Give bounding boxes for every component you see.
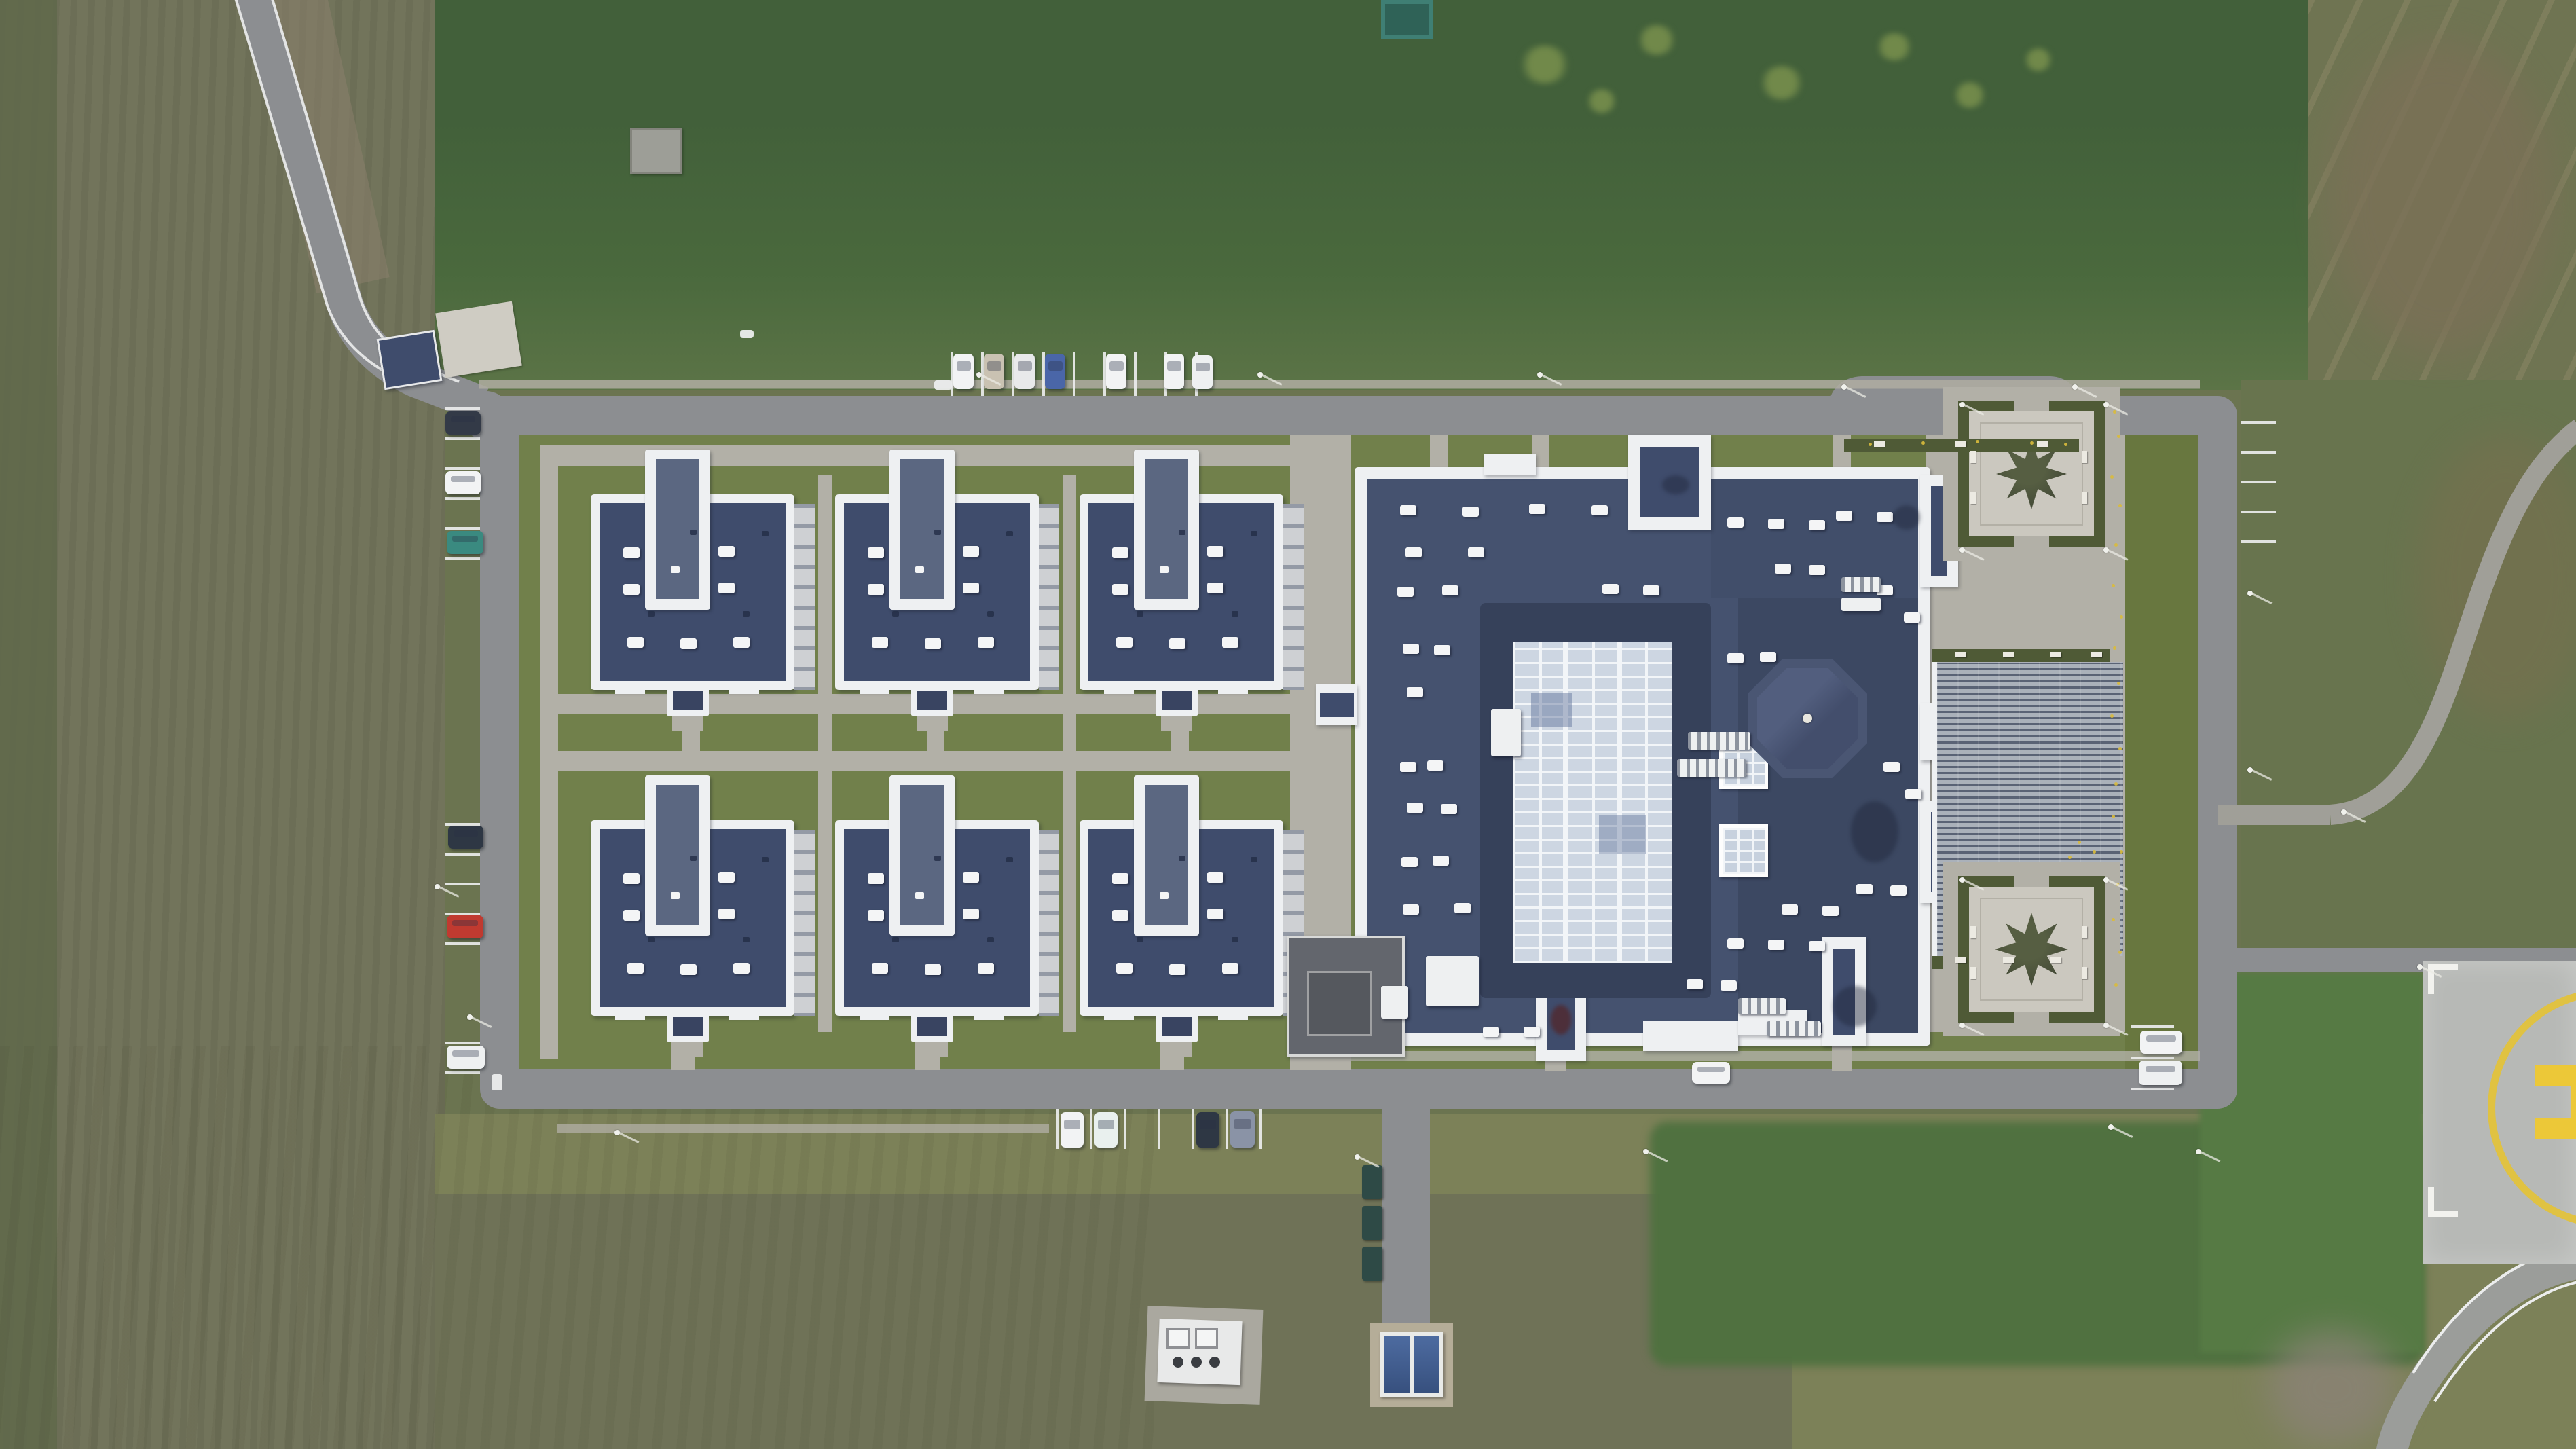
- bench: [2082, 967, 2087, 979]
- apartment-porch-roof: [673, 1017, 703, 1036]
- plaza-south-hedge-left: [1958, 876, 1969, 1023]
- apartment-entrance-pad: [672, 1042, 703, 1057]
- roof-vent: [1727, 938, 1744, 949]
- apartment-roof-hatch: [978, 963, 994, 974]
- helipad-corner-mark-2b: [2428, 1211, 2458, 1217]
- lamp-post: [2072, 384, 2078, 390]
- car: [1164, 354, 1184, 389]
- roof-unit: [1767, 1021, 1821, 1036]
- roof-vent: [1768, 519, 1784, 529]
- roof-vent: [1822, 906, 1839, 916]
- apartment-roof-hatch: [1116, 963, 1133, 974]
- roof-vent: [1401, 857, 1418, 867]
- apartment-roof-hatch: [1112, 910, 1128, 921]
- parking-bay-line: [1226, 1109, 1228, 1149]
- lamp-post: [1959, 1023, 1965, 1028]
- roof-vent: [1405, 547, 1422, 557]
- roof-vent: [1400, 762, 1416, 772]
- octagon-finial: [1803, 714, 1812, 723]
- car: [1045, 354, 1065, 389]
- apartment-entrance-pad: [1161, 1042, 1192, 1057]
- apartment-building-6: [1080, 775, 1304, 1061]
- helipad-corner-mark-1b: [2428, 964, 2434, 994]
- apartment-roof-hatch: [925, 638, 941, 649]
- roof-vent: [1468, 547, 1484, 557]
- apartment-parapet-step: [860, 1009, 889, 1020]
- lamp-post: [2103, 547, 2109, 553]
- apartment-roof-hatch: [627, 637, 644, 648]
- apartment-stair-tower-roof: [900, 459, 944, 599]
- apartment-entrance-pad: [672, 716, 703, 731]
- apartment-roof-hatch: [1112, 873, 1128, 884]
- apartment-roof-hatch: [963, 909, 979, 919]
- roof-vent: [1775, 564, 1791, 574]
- apartment-roof-hatch: [1207, 583, 1223, 593]
- apartment-tower-vent: [1160, 566, 1169, 573]
- car: [448, 826, 483, 849]
- apartment-tower-vent: [1160, 892, 1169, 899]
- flower-dot: [2112, 918, 2115, 921]
- lamp-post: [1257, 372, 1263, 378]
- lamp-post: [2247, 767, 2253, 773]
- apartment-roof-hatch: [1222, 637, 1238, 648]
- parking-bay-line: [1259, 1109, 1262, 1149]
- bench: [1970, 926, 1976, 938]
- apartment-roof-hatch: [1169, 964, 1185, 975]
- bench: [2003, 652, 2014, 657]
- apartment-roof-hatch: [1207, 909, 1223, 919]
- roof-vent: [1905, 789, 1921, 799]
- apartment-building-5: [835, 775, 1059, 1061]
- roof-vent: [1524, 1027, 1540, 1037]
- parking-bay-line: [445, 497, 480, 500]
- roof-vent: [1483, 1027, 1499, 1037]
- main-west-connector-roof: [1320, 693, 1354, 717]
- parking-bay-line: [1056, 1109, 1059, 1149]
- apartment-roof-dot: [690, 856, 697, 861]
- apartment-parapet-step: [860, 683, 889, 694]
- lamp-post: [976, 372, 982, 378]
- apartment-tower-vent: [671, 892, 680, 899]
- apartment-roof-dot: [648, 937, 655, 942]
- flower-dot: [1869, 443, 1872, 446]
- roof-unit: [1738, 998, 1786, 1014]
- apartment-roof-hatch: [963, 583, 979, 593]
- flower-dot: [2114, 543, 2118, 547]
- apartment-roof-hatch: [868, 547, 884, 558]
- apartment-roof-dot: [1006, 857, 1013, 862]
- flower-dot: [2113, 410, 2116, 414]
- apartment-roof-hatch: [868, 873, 884, 884]
- parking-bay-line: [445, 437, 480, 440]
- lamp-post: [2341, 809, 2347, 815]
- parking-bay-line: [1158, 1109, 1160, 1149]
- dumpster: [1362, 1247, 1382, 1281]
- roof-vent: [1407, 687, 1423, 697]
- apartment-roof-hatch: [733, 963, 750, 974]
- flower-dot: [2110, 714, 2114, 718]
- bench: [2003, 957, 2014, 963]
- dumpster: [1362, 1206, 1382, 1240]
- apartment-roof-hatch: [623, 584, 640, 595]
- apartment-roof-hatch: [680, 964, 697, 975]
- parking-bay-line: [2131, 1057, 2174, 1059]
- flower-dot: [2093, 850, 2096, 854]
- aerial-drone-photo: H: [0, 0, 2576, 1449]
- roof-vent: [1687, 979, 1703, 989]
- lamp-post: [2417, 964, 2423, 970]
- roof-vent: [1883, 762, 1900, 772]
- roof-vent: [1643, 585, 1659, 595]
- apartment-building-4: [591, 775, 815, 1061]
- apartment-parapet-step: [1104, 683, 1134, 694]
- apartment-roof-dot: [1179, 530, 1185, 535]
- roof-unit: [1688, 732, 1750, 750]
- bench: [1955, 652, 1966, 657]
- apartment-roof-dot: [1232, 937, 1238, 942]
- apartment-building-3: [1080, 450, 1304, 735]
- car: [1196, 1112, 1219, 1148]
- solar-panel-2: [1414, 1336, 1439, 1393]
- roof-vent: [1591, 505, 1608, 515]
- car: [1014, 354, 1035, 389]
- gatehouse-pad: [435, 301, 522, 378]
- plaza-north-hedge-left: [1958, 401, 1969, 547]
- apartment-roof-dot: [892, 937, 899, 942]
- roof-unit: [1677, 759, 1746, 777]
- flower-dot: [2118, 951, 2122, 954]
- apartment-roof-dot: [1179, 856, 1185, 861]
- car: [1061, 1112, 1084, 1148]
- apartment-roof-hatch: [1222, 963, 1238, 974]
- roof-vent: [1407, 803, 1423, 813]
- roof-vent: [1809, 941, 1825, 951]
- apartment-roof-hatch: [978, 637, 994, 648]
- apartment-stair-tower-roof: [1145, 785, 1188, 925]
- flower-dot: [2078, 841, 2081, 844]
- apartment-east-facade: [794, 830, 815, 1016]
- roof-vent: [1836, 511, 1852, 521]
- roof-unit: [1426, 956, 1479, 1006]
- apartment-roof-dot: [762, 531, 769, 536]
- apartment-roof-hatch: [868, 584, 884, 595]
- roof-vent: [1433, 856, 1449, 866]
- roof-vent: [1442, 585, 1458, 595]
- bench: [1955, 957, 1966, 963]
- apartment-stair-tower-roof: [1145, 459, 1188, 599]
- plaza-north-hedge-right: [2094, 401, 2105, 547]
- road-marking: [740, 330, 754, 338]
- roof-vent: [1890, 885, 1907, 896]
- bench: [2082, 451, 2087, 463]
- apartment-east-facade: [1039, 504, 1059, 690]
- flower-dot: [1976, 440, 1979, 443]
- bench: [1874, 441, 1885, 447]
- tank-turquoise: [1381, 0, 1433, 39]
- apartment-east-facade: [1039, 830, 1059, 1016]
- dumpster: [1362, 1165, 1382, 1199]
- parking-bay-line: [445, 1042, 480, 1044]
- apartment-roof-hatch: [623, 873, 640, 884]
- apartment-parapet-step: [615, 683, 645, 694]
- parking-bay-line: [2241, 421, 2276, 424]
- flower-dot: [2064, 443, 2067, 446]
- car: [2139, 1061, 2182, 1085]
- roof-stain: [1833, 986, 1877, 1027]
- road-marking: [934, 380, 952, 390]
- apartment-roof-hatch: [872, 963, 888, 974]
- car: [1230, 1111, 1255, 1148]
- roof-vent: [1809, 520, 1825, 530]
- roof-vent: [1760, 652, 1776, 662]
- apartment-roof-hatch: [733, 637, 750, 648]
- apartment-roof-hatch: [718, 583, 735, 593]
- car: [984, 354, 1004, 389]
- car: [1106, 354, 1126, 389]
- apartment-porch-roof: [673, 691, 703, 710]
- parking-bay-line: [1090, 1109, 1092, 1149]
- main-portico-west-stain: [1551, 1005, 1571, 1035]
- lamp-post: [1959, 877, 1965, 883]
- apartment-roof-hatch: [1207, 872, 1223, 883]
- apartment-roof-hatch: [623, 910, 640, 921]
- apartment-parapet-step: [729, 1009, 759, 1020]
- gap-path-1: [818, 475, 832, 1032]
- apartment-tower-vent: [915, 892, 924, 899]
- apartment-entrance-pad: [917, 716, 948, 731]
- flower-dot: [2110, 475, 2114, 479]
- roof-stain: [1662, 475, 1689, 494]
- roof-vent: [1721, 980, 1737, 991]
- lamp-post: [2103, 402, 2109, 407]
- lamp-post: [2108, 1124, 2114, 1130]
- flower-dot: [2030, 441, 2034, 445]
- plaza-south-hedge-right: [2094, 876, 2105, 1023]
- apartment-roof-dot: [1137, 611, 1143, 617]
- roof-stain: [1893, 505, 1920, 530]
- parking-bay-line: [445, 407, 480, 410]
- apartment-roof-dot: [892, 611, 899, 617]
- parking-bay-line: [445, 1071, 480, 1074]
- car: [447, 531, 483, 554]
- car: [445, 471, 481, 494]
- parking-bay-line: [2241, 451, 2276, 454]
- parking-bay-line: [445, 527, 480, 530]
- apartment-parapet-step: [615, 1009, 645, 1020]
- apartment-stair-tower-roof: [656, 785, 699, 925]
- roof-vent: [1434, 645, 1450, 655]
- lamp-post: [435, 884, 440, 889]
- roof-vent: [1904, 612, 1920, 623]
- main-roof-northeast: [1711, 479, 1918, 598]
- roof-vent: [1397, 587, 1414, 597]
- gatehouse: [377, 330, 443, 390]
- flower-dot: [2114, 983, 2118, 987]
- apartment-parapet-step: [974, 1009, 1004, 1020]
- apartment-entrance-pad: [917, 1042, 948, 1057]
- lamp-post: [1537, 372, 1543, 378]
- flower-dot: [2117, 682, 2120, 685]
- apartment-roof-dot: [934, 856, 941, 861]
- apartment-parapet-step: [974, 683, 1004, 694]
- bench: [2050, 652, 2061, 657]
- apartment-roof-hatch: [623, 547, 640, 558]
- apartment-porch-roof: [1162, 1017, 1192, 1036]
- apartment-porch-roof: [917, 1017, 947, 1036]
- roof-vent: [1462, 507, 1479, 517]
- bench: [2050, 957, 2061, 963]
- apartment-roof-dot: [1251, 531, 1257, 536]
- apartment-roof-hatch: [1169, 638, 1185, 649]
- bench: [1970, 492, 1976, 504]
- roof-unit: [1841, 577, 1881, 592]
- roof-vent: [1400, 505, 1416, 515]
- apartment-roof-hatch: [680, 638, 697, 649]
- apartment-stair-tower-roof: [656, 459, 699, 599]
- parking-bay-line: [1124, 1109, 1126, 1149]
- parking-bay-line: [1073, 352, 1075, 396]
- gap-path-2: [1063, 475, 1076, 1032]
- flower-dot: [2112, 584, 2115, 587]
- bench: [2082, 926, 2087, 938]
- utility-vent-2: [1191, 1357, 1202, 1368]
- apartment-roof-hatch: [1112, 584, 1128, 595]
- roof-vent: [1809, 565, 1825, 575]
- apartment-tower-vent: [915, 566, 924, 573]
- atrium-dark-pane-2: [1599, 815, 1646, 854]
- flower-dot: [2120, 850, 2123, 854]
- bench: [1970, 451, 1976, 463]
- apartment-roof-dot: [648, 611, 655, 617]
- roof-vent: [1727, 653, 1744, 663]
- apartment-roof-hatch: [1116, 637, 1133, 648]
- flower-dot: [2113, 646, 2116, 650]
- car: [447, 1046, 485, 1069]
- roof-vent: [1856, 884, 1873, 894]
- flower-dot: [2118, 747, 2122, 750]
- flower-dot: [1921, 441, 1925, 445]
- utility-hatch-2: [1195, 1328, 1218, 1349]
- road-marking: [492, 1074, 502, 1090]
- shed-northwest: [630, 128, 682, 174]
- apartment-parapet-step: [1218, 683, 1248, 694]
- roof-vent: [1403, 644, 1419, 654]
- bench: [1970, 967, 1976, 979]
- flower-dot: [2112, 815, 2115, 818]
- apartment-porch-roof: [1162, 691, 1192, 710]
- roof-vent: [1727, 517, 1744, 528]
- parking-bay-line: [2241, 481, 2276, 483]
- roof-stain: [1851, 801, 1898, 862]
- apartment-roof-dot: [690, 530, 697, 535]
- flower-dot: [2120, 615, 2123, 619]
- lamp-post: [1959, 402, 1965, 407]
- apartment-entrance-pad: [1161, 716, 1192, 731]
- car: [1094, 1112, 1118, 1148]
- apartment-roof-dot: [1232, 611, 1238, 617]
- apartment-parapet-step: [1218, 1009, 1248, 1020]
- lamp-post: [1355, 1154, 1360, 1160]
- apartment-stair-tower-roof: [900, 785, 944, 925]
- roof-vent: [1602, 584, 1619, 594]
- apartment-roof-dot: [743, 937, 750, 942]
- apartment-roof-hatch: [963, 872, 979, 883]
- roof-vent: [1529, 504, 1545, 514]
- apartment-roof-dot: [1251, 857, 1257, 862]
- lamp-post: [614, 1130, 620, 1135]
- lamp-post: [2103, 1023, 2109, 1028]
- apartment-roof-hatch: [868, 910, 884, 921]
- apartment-roof-hatch: [627, 963, 644, 974]
- car: [953, 354, 974, 389]
- parking-bay-line: [445, 467, 480, 470]
- apartment-tower-vent: [671, 566, 680, 573]
- solar-panel-1: [1384, 1336, 1410, 1393]
- apartment-parapet-step: [729, 683, 759, 694]
- skylight-small-2: [1719, 824, 1768, 877]
- apartment-roof-dot: [934, 530, 941, 535]
- apartment-roof-hatch: [718, 909, 735, 919]
- helipad-h-marking: H: [2514, 1044, 2576, 1160]
- atrium-skylight: [1513, 642, 1672, 963]
- atrium-dark-pane-1: [1531, 693, 1572, 727]
- courtyard-path-south: [540, 751, 1324, 771]
- apartment-parapet-step: [1104, 1009, 1134, 1020]
- main-south-step-1: [1643, 1021, 1738, 1051]
- bench: [1955, 441, 1966, 447]
- apartment-roof-dot: [987, 611, 994, 617]
- parking-bay-line: [445, 853, 480, 856]
- apartment-roof-dot: [762, 857, 769, 862]
- car: [1192, 355, 1213, 389]
- apartment-roof-hatch: [1207, 546, 1223, 557]
- utility-hatch-1: [1166, 1328, 1190, 1349]
- parking-bay-line: [2241, 511, 2276, 513]
- service-annex-inner: [1307, 971, 1372, 1036]
- flower-dot: [2118, 504, 2122, 507]
- roof-unit: [1841, 598, 1881, 611]
- parking-bay-line: [2131, 1088, 2174, 1090]
- apartment-roof-dot: [987, 937, 994, 942]
- flower-dot: [2114, 782, 2118, 786]
- apartment-roof-hatch: [1112, 547, 1128, 558]
- main-north-notch: [1484, 454, 1536, 475]
- roof-vent: [1441, 804, 1457, 814]
- apartment-roof-dot: [1006, 531, 1013, 536]
- bench: [2091, 652, 2102, 657]
- apartment-roof-hatch: [718, 546, 735, 557]
- lamp-post: [2196, 1149, 2201, 1154]
- lamp-post: [1959, 547, 1965, 553]
- apartment-roof-hatch: [872, 637, 888, 648]
- car: [447, 915, 483, 938]
- apartment-porch-roof: [917, 691, 947, 710]
- lamp-post: [2103, 877, 2109, 883]
- bench: [2037, 441, 2048, 447]
- lamp-post: [467, 1014, 473, 1020]
- apartment-roof-dot: [1137, 937, 1143, 942]
- roof-vent: [1877, 512, 1893, 522]
- parking-bay-line: [2241, 540, 2276, 543]
- apartment-building-2: [835, 450, 1059, 735]
- parking-bay-line: [445, 942, 480, 945]
- roof-unit: [1381, 986, 1408, 1019]
- flower-dot: [2117, 435, 2120, 438]
- parking-bay-line: [1134, 352, 1137, 396]
- apartment-east-facade: [794, 504, 815, 690]
- apartment-roof-hatch: [963, 546, 979, 557]
- lamp-post: [2247, 591, 2253, 596]
